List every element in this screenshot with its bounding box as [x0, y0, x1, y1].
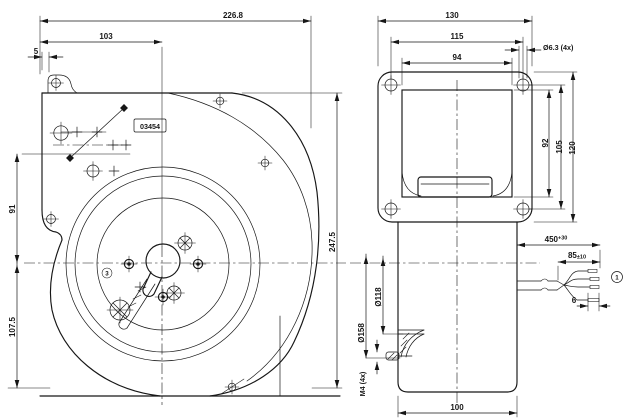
lead-dimension-lines	[517, 245, 610, 306]
lead-wires: 450+30 85±10 6 1	[517, 235, 623, 311]
dim-corner-hole-dia: Ø6.3 (4x)	[543, 43, 574, 52]
side-view: 130 115 94 Ø6.3 (4x) 92 105 120 100 Ø118…	[350, 11, 577, 417]
dim-window-height: 92	[541, 138, 550, 147]
front-extension-lines	[8, 16, 342, 388]
note-3-label: 3	[105, 271, 109, 278]
dim-window-width: 94	[453, 53, 462, 62]
dim-lower-height: 107.5	[8, 316, 17, 337]
motor-cap	[418, 177, 492, 197]
window-gusset-right	[493, 172, 512, 196]
dim-overall-height: 247.5	[328, 231, 337, 252]
cable-gland	[107, 279, 155, 329]
dim-overall-width: 226.8	[223, 11, 244, 20]
shaft-keyhole	[143, 244, 180, 296]
front-view: 03454 3 226.8 103 5 91	[8, 11, 346, 405]
dim-flange-height: 120	[568, 141, 577, 155]
dim-hole-pitch-h: 115	[451, 32, 464, 41]
dim-inlet-inner-dia: Ø118	[374, 287, 383, 307]
scroll-inner-wall	[168, 93, 312, 381]
side-dimension-lines	[366, 21, 573, 413]
section-line-marker	[66, 104, 128, 162]
dim-tab-offset: 5	[34, 47, 39, 56]
dim-stud-thread: M4 (4x)	[358, 371, 367, 396]
dim-upper-height: 91	[8, 204, 17, 213]
dim-cable-length: 450+30	[545, 235, 568, 244]
mounting-flange	[378, 72, 532, 222]
note-1-label: 1	[615, 275, 619, 282]
side-dimension-arrows	[364, 19, 576, 416]
dim-body-width: 100	[450, 403, 464, 412]
inlet-ring	[386, 330, 424, 360]
lead-extension-lines	[517, 250, 600, 311]
dim-flange-width: 130	[445, 11, 459, 20]
blower-dimension-drawing: 03454 3 226.8 103 5 91	[0, 0, 628, 420]
dim-fanout-length: 85±10	[568, 251, 586, 261]
dim-inlet-offset: 103	[99, 32, 113, 41]
technical-drawing-canvas: 03454 3 226.8 103 5 91	[0, 0, 628, 420]
impeller-circles	[66, 167, 260, 361]
top-mounting-tab	[48, 75, 77, 93]
dim-inlet-outer-dia: Ø158	[357, 323, 366, 343]
stamp-label: 03454	[140, 122, 160, 131]
dim-strip-length: 6	[572, 296, 577, 305]
motor-body	[398, 222, 517, 392]
dim-hole-pitch-v: 105	[555, 140, 564, 154]
